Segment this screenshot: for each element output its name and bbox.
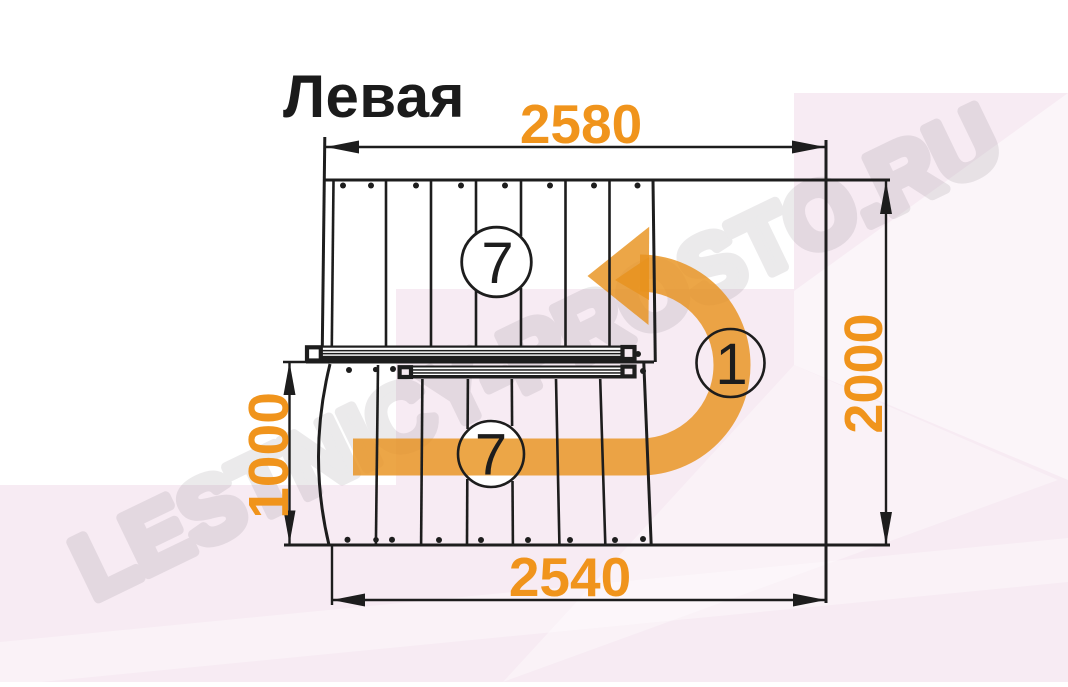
svg-text:2540: 2540 (509, 546, 631, 608)
svg-text:7: 7 (481, 231, 513, 296)
svg-text:1: 1 (715, 332, 747, 397)
svg-text:1000: 1000 (237, 392, 301, 519)
svg-text:Левая: Левая (283, 63, 465, 130)
svg-text:7: 7 (475, 423, 507, 488)
svg-text:2580: 2580 (520, 93, 642, 155)
svg-text:2000: 2000 (834, 313, 894, 433)
